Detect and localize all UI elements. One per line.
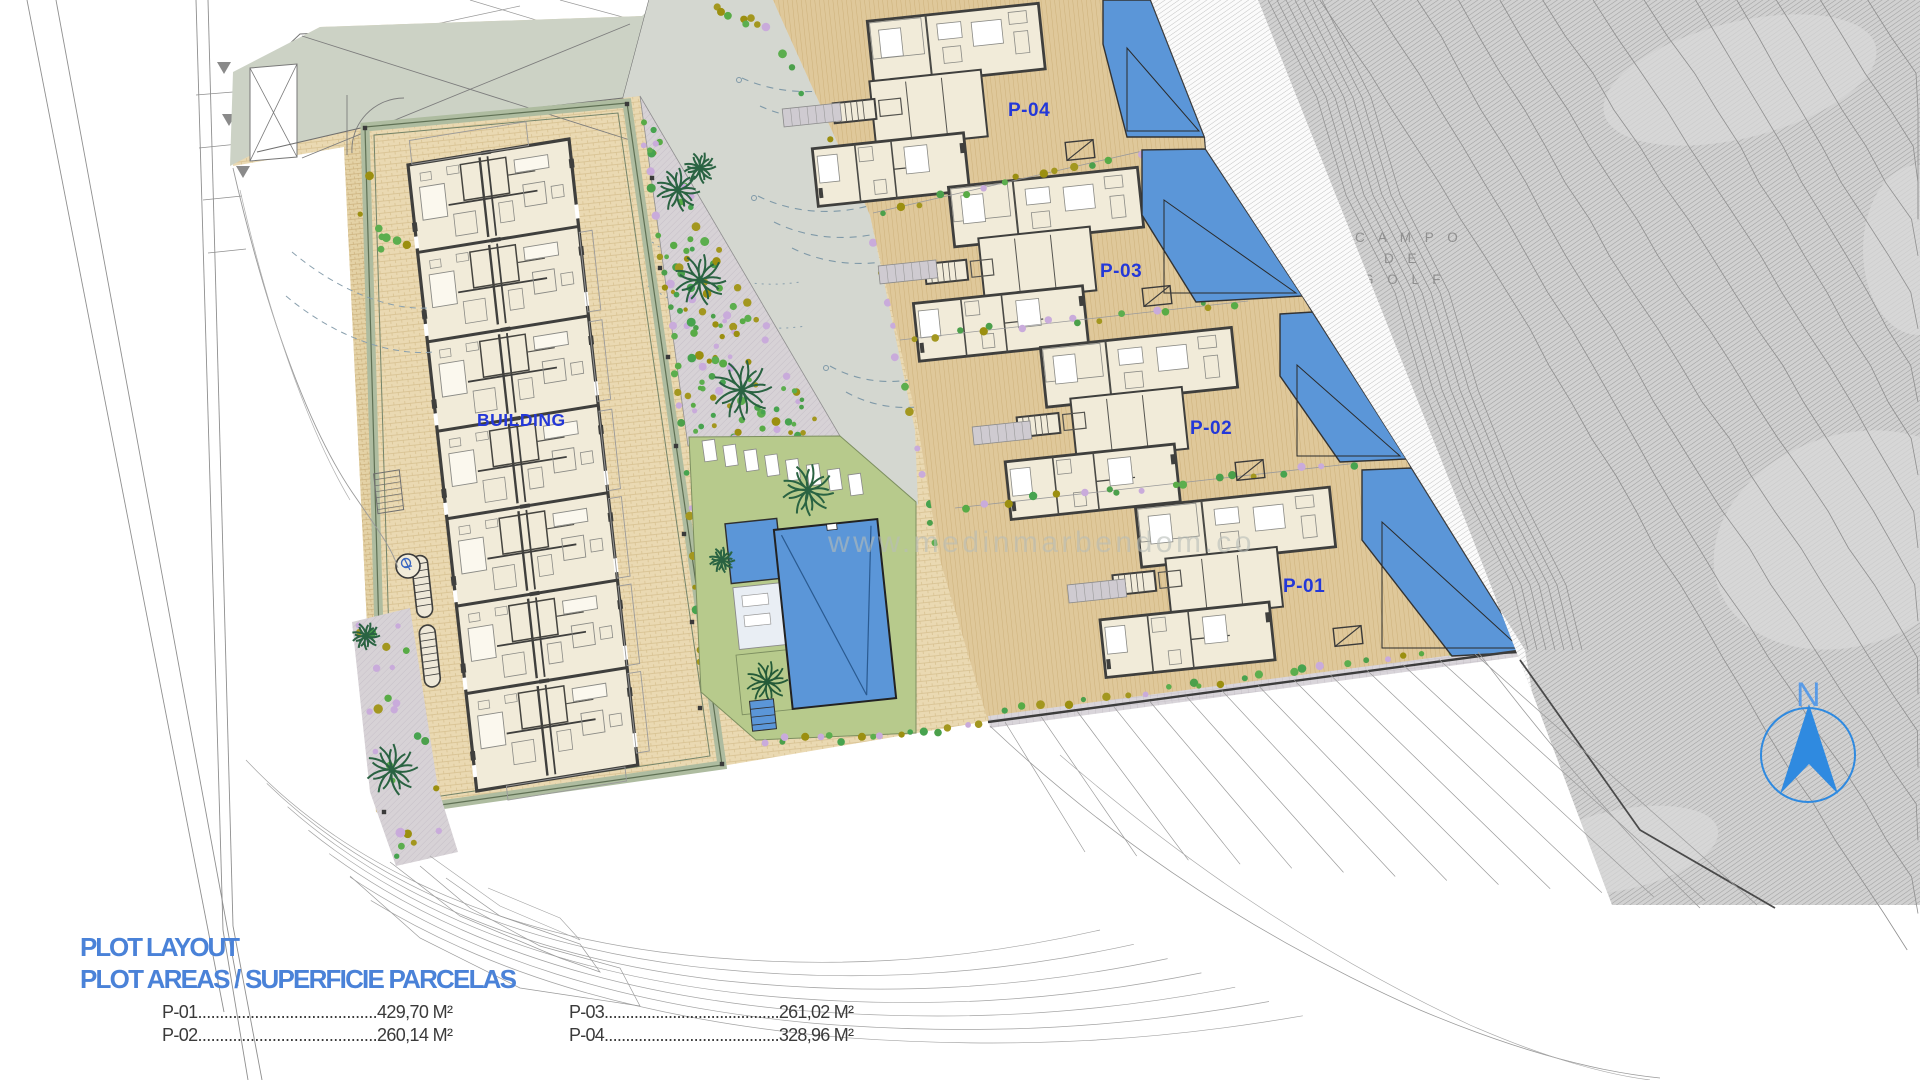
svg-text:N: N [1796, 676, 1821, 714]
svg-text:G O L F: G O L F [1363, 272, 1446, 287]
svg-text:PLOT LAYOUT: PLOT LAYOUT [80, 932, 240, 962]
svg-text:P-01: P-01 [1283, 576, 1325, 597]
svg-text:P-02: P-02 [1190, 418, 1232, 439]
svg-text:P-03: P-03 [1100, 261, 1142, 282]
svg-text:P-04: P-04 [1008, 100, 1050, 121]
svg-text:BUILDING: BUILDING [477, 410, 566, 430]
svg-text:PLOT AREAS / SUPERFICIE PARCEL: PLOT AREAS / SUPERFICIE PARCELAS [80, 964, 517, 994]
svg-text:P-04..........................: P-04....................................… [569, 1025, 854, 1045]
svg-text:P-01..........................: P-01....................................… [162, 1002, 453, 1022]
svg-text:P-03..........................: P-03....................................… [569, 1002, 854, 1022]
svg-text:D E: D E [1384, 251, 1422, 266]
svg-text:C A M P O: C A M P O [1355, 230, 1463, 245]
svg-text:P-02..........................: P-02....................................… [162, 1025, 453, 1045]
svg-text:www.medinmarbendom.co: www.medinmarbendom.co [827, 526, 1255, 559]
